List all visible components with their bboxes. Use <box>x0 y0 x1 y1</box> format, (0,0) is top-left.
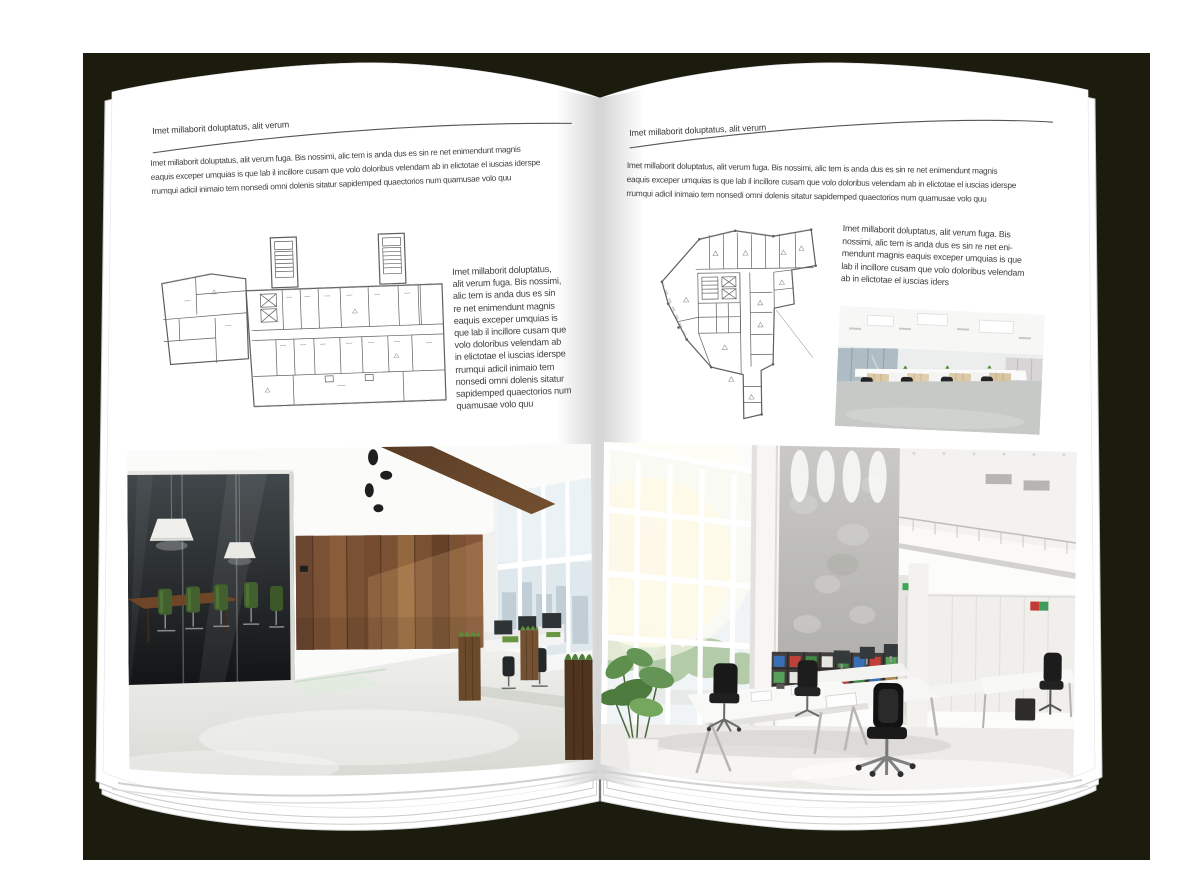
right-intro-paragraph: Imet millaborit doluptatus, alit verum f… <box>626 158 1016 206</box>
corridor <box>740 273 751 375</box>
photo-office-loft-interior <box>600 442 1077 803</box>
column-2 <box>907 563 929 733</box>
left-wing-rooms <box>162 275 249 365</box>
misc-walls <box>678 316 761 403</box>
floor-plan-outer-walls <box>661 230 818 420</box>
concrete-wall <box>778 444 900 659</box>
stair-towers <box>274 237 401 277</box>
photo-office-wood-interior <box>127 444 593 782</box>
left-side-text: Imet millaborit doluptatus, alit verum f… <box>452 262 572 412</box>
window-band <box>661 230 812 340</box>
top-rooms <box>695 232 813 270</box>
photo-office-workstations-small <box>835 306 1045 435</box>
interior-walls <box>250 284 446 407</box>
elevator-core <box>260 294 277 323</box>
boundary-line <box>776 310 813 358</box>
floor <box>600 724 1074 803</box>
right-side-text: Imet millaborit doluptatus, alit verum f… <box>841 222 1026 291</box>
wood-wall <box>296 535 484 650</box>
first-aid-sign <box>1030 601 1039 610</box>
door-symbols <box>325 374 373 382</box>
magazine-mockup: Imet millaborit doluptatus, alit verum I… <box>0 0 1200 891</box>
floor-plan-left <box>152 222 451 424</box>
right-rooms <box>750 270 795 355</box>
meeting-room <box>127 470 295 687</box>
core <box>698 273 741 334</box>
floor-plan-right <box>645 215 838 423</box>
